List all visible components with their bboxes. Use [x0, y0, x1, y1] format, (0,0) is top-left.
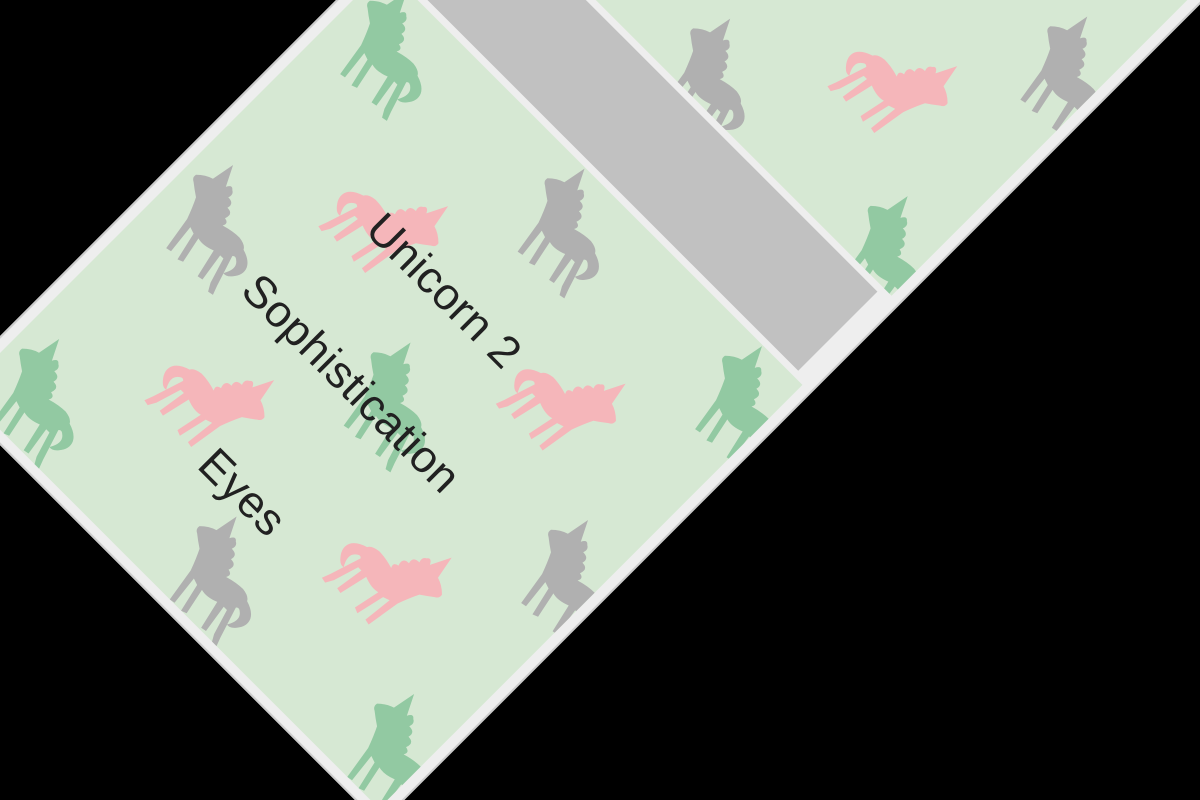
unicorn-icon [660, 497, 803, 658]
rotated-page: Unicorn 2 Sophistication Eyes [0, 0, 1200, 800]
viewport: Unicorn 2 Sophistication Eyes [0, 0, 1200, 800]
unicorn-icon [486, 671, 647, 800]
card-attribute: Eyes [32, 281, 454, 703]
unicorn-icon [991, 179, 1152, 296]
unicorn-icon [814, 2, 975, 163]
unicorn-icon [1171, 0, 1200, 161]
card-text-block: Unicorn 2 Sophistication Eyes [32, 80, 690, 738]
unicorn-icon [991, 0, 1152, 160]
